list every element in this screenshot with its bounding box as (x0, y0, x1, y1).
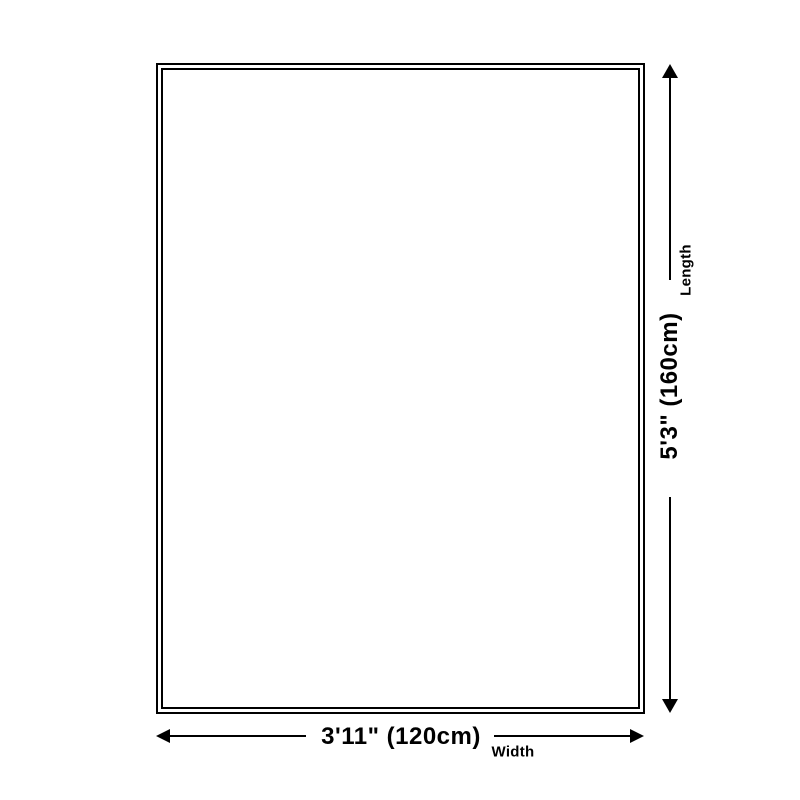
dimension-diagram: Length 5'3" (160cm) 3'11" (120cm) Width (0, 0, 800, 800)
width-dimension-line-left (169, 735, 306, 737)
length-dimension-line-top (669, 77, 671, 280)
rug-outline (156, 63, 645, 714)
length-dimension-line-bottom (669, 497, 671, 699)
length-axis-label: Length (678, 244, 695, 296)
length-value-label: 5'3" (160cm) (656, 312, 684, 459)
width-axis-label: Width (491, 744, 534, 761)
arrow-down-icon (662, 699, 678, 713)
arrow-up-icon (662, 64, 678, 78)
rug-inner-outline (161, 68, 640, 709)
width-dimension-line-right (494, 735, 631, 737)
arrow-left-icon (156, 729, 170, 743)
arrow-right-icon (630, 729, 644, 743)
width-value-label: 3'11" (120cm) (321, 723, 481, 751)
